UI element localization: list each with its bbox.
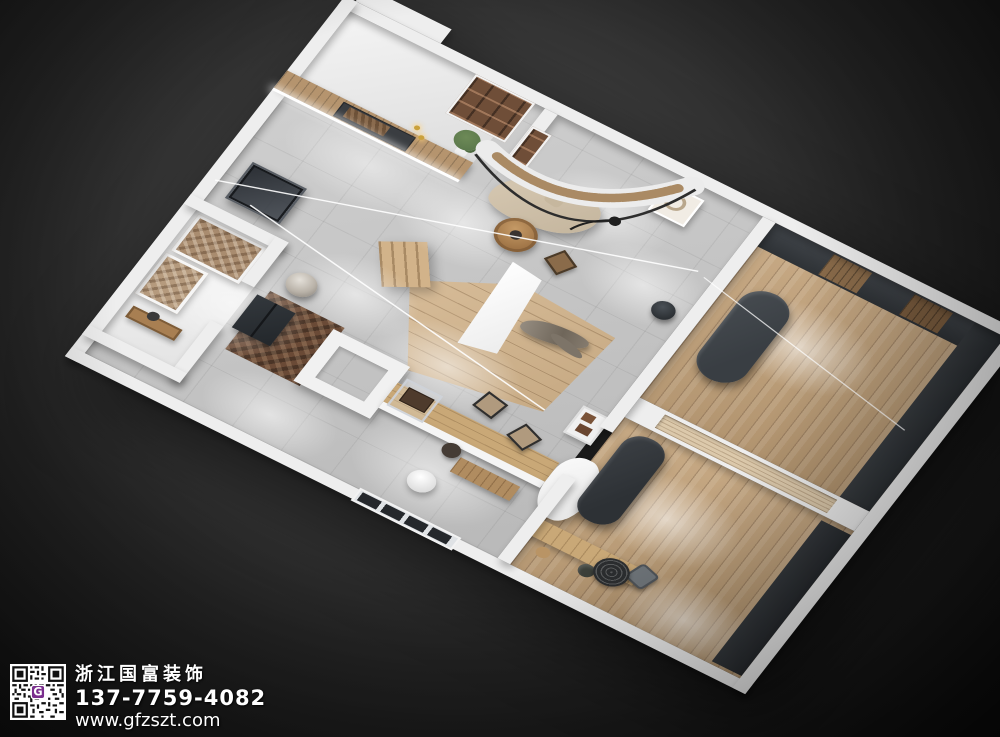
phone-number: 137-7759-4082 <box>75 686 266 710</box>
watermark: G 浙江国富装饰 137-7759-4082 www.gfzszt.com <box>10 664 266 732</box>
qr-code-icon: G <box>10 664 66 720</box>
led-floor-line <box>215 73 698 379</box>
curved-wood-slat-inset <box>494 114 679 235</box>
led-floor-line <box>674 277 935 430</box>
led-floor-line <box>217 205 577 410</box>
arc-floor-lamp-shade <box>607 215 624 228</box>
arc-floor-lamp <box>570 208 613 243</box>
floor-plan <box>65 0 1000 694</box>
website-url: www.gfzszt.com <box>75 710 266 732</box>
watermark-text-block: 浙江国富装饰 137-7759-4082 www.gfzszt.com <box>75 664 266 732</box>
curves-overlay <box>65 0 1000 694</box>
curved-dark-rail <box>463 101 696 259</box>
qr-logo-letter: G <box>33 686 42 699</box>
floor-plan-wrapper <box>0 0 1000 737</box>
render-canvas: G 浙江国富装饰 137-7759-4082 www.gfzszt.com <box>0 0 1000 737</box>
company-name: 浙江国富装饰 <box>75 664 266 686</box>
